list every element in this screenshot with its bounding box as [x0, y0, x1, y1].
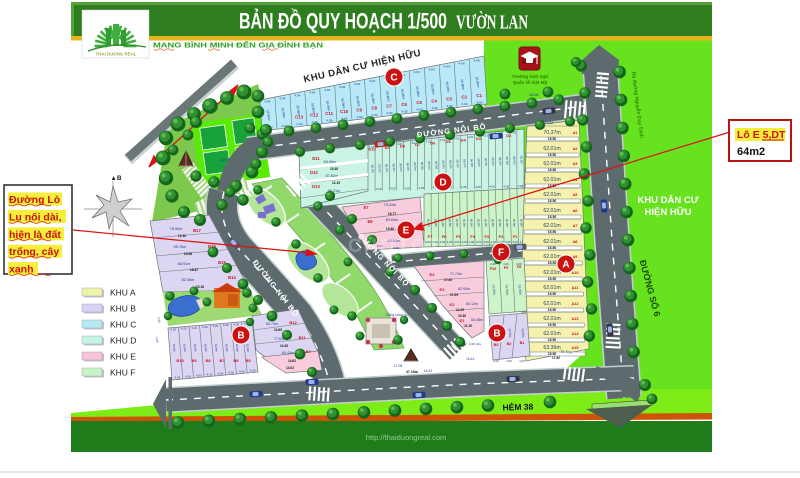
svg-text:4.20: 4.20: [223, 323, 229, 327]
svg-text:A10: A10: [572, 271, 579, 275]
svg-text:63.36m: 63.36m: [543, 345, 560, 351]
svg-text:56.9m: 56.9m: [399, 163, 404, 172]
svg-text:62.01m: 62.01m: [543, 270, 560, 276]
svg-text:11.10: 11.10: [464, 324, 472, 328]
svg-text:4.20: 4.20: [181, 327, 187, 331]
svg-text:A3: A3: [573, 162, 578, 166]
svg-text:Trường Anh ngữ: Trường Anh ngữ: [512, 74, 549, 79]
svg-text:A11: A11: [572, 286, 579, 290]
svg-text:47.15m: 47.15m: [406, 370, 418, 374]
svg-text:E1: E1: [460, 318, 466, 323]
svg-text:63.8m: 63.8m: [521, 328, 526, 338]
svg-text:▲B: ▲B: [110, 175, 121, 182]
svg-text:D12: D12: [310, 170, 318, 175]
svg-text:B7: B7: [219, 358, 225, 363]
svg-text:4.00: 4.00: [506, 359, 512, 363]
svg-text:18.87: 18.87: [190, 268, 198, 272]
svg-text:D13: D13: [312, 184, 320, 189]
svg-text:62.01m: 62.01m: [543, 161, 560, 167]
svg-text:56.9m: 56.9m: [477, 158, 482, 167]
svg-text:Quốc tế Việt Mỹ: Quốc tế Việt Mỹ: [513, 79, 548, 85]
svg-text:4.00: 4.00: [185, 375, 191, 379]
svg-text:4.00 nhà: 4.00 nhà: [469, 342, 481, 346]
svg-text:13.53: 13.53: [545, 121, 553, 125]
svg-text:B10: B10: [176, 358, 184, 363]
svg-text:64m2: 64m2: [737, 146, 765, 158]
svg-text:56.9m: 56.9m: [384, 164, 389, 173]
svg-text:4.00: 4.00: [493, 359, 499, 363]
svg-text:55.8m: 55.8m: [490, 219, 495, 228]
svg-text:F5: F5: [456, 234, 461, 239]
svg-text:62.93m: 62.93m: [458, 287, 470, 291]
svg-text:63.6m: 63.6m: [235, 344, 240, 353]
svg-text:15.50: 15.50: [548, 230, 557, 234]
svg-text:4.05: 4.05: [489, 185, 495, 189]
svg-text:62.01m: 62.01m: [543, 192, 560, 198]
svg-text:4.00: 4.00: [431, 106, 437, 110]
svg-text:4.04: 4.04: [354, 82, 360, 86]
svg-text:4.00: 4.00: [476, 240, 482, 244]
svg-text:C11: C11: [325, 111, 333, 116]
svg-text:15.58: 15.58: [184, 252, 192, 256]
svg-text:HIỆN HỮU: HIỆN HỮU: [645, 206, 692, 218]
svg-text:15.38: 15.38: [330, 167, 338, 171]
svg-text:4.00: 4.00: [371, 113, 377, 117]
svg-text:4.00: 4.00: [250, 369, 256, 373]
svg-text:D6: D6: [430, 141, 436, 146]
svg-text:13.60: 13.60: [386, 227, 394, 231]
svg-text:C3: C3: [446, 97, 452, 102]
svg-text:B3: B3: [494, 343, 499, 347]
svg-text:10.95: 10.95: [274, 328, 282, 332]
svg-text:15.50: 15.50: [548, 338, 557, 342]
svg-text:56.9m: 56.9m: [370, 165, 375, 174]
svg-text:62.01m: 62.01m: [543, 285, 560, 291]
svg-text:12.15: 12.15: [332, 181, 340, 185]
svg-text:4.00: 4.00: [476, 100, 482, 104]
svg-text:14.62: 14.62: [288, 359, 296, 363]
svg-text:KHU A: KHU A: [110, 288, 136, 298]
svg-text:17.50: 17.50: [552, 356, 560, 360]
svg-text:4.00: 4.00: [175, 376, 181, 380]
svg-text:B11: B11: [298, 335, 306, 340]
svg-text:4.00: 4.00: [386, 111, 392, 115]
svg-text:4.00: 4.00: [239, 370, 245, 374]
svg-text:56.9m: 56.9m: [434, 161, 439, 170]
svg-text:62.01m: 62.01m: [543, 208, 560, 214]
svg-text:56.9m: 56.9m: [427, 161, 432, 170]
svg-text:A5: A5: [573, 193, 578, 197]
svg-text:D4: D4: [461, 137, 467, 142]
svg-text:62.01m: 62.01m: [543, 223, 560, 229]
svg-text:E3: E3: [440, 287, 446, 292]
svg-text:4.00: 4.00: [326, 118, 332, 122]
svg-text:71.74m: 71.74m: [450, 272, 462, 276]
svg-text:68.91m: 68.91m: [178, 262, 191, 266]
svg-text:4.05: 4.05: [404, 186, 410, 190]
svg-text:MANG BÌNH MINH ĐẾN GIA ĐÌNH BẠ: MANG BÌNH MINH ĐẾN GIA ĐÌNH BẠN: [153, 40, 323, 50]
svg-text:C5: C5: [416, 100, 422, 105]
svg-text:4.05: 4.05: [503, 184, 509, 188]
svg-text:4.01: 4.01: [425, 139, 431, 143]
svg-text:4.00: 4.00: [519, 359, 525, 363]
svg-text:55.8m: 55.8m: [433, 219, 438, 228]
svg-text:15.50: 15.50: [548, 323, 557, 327]
svg-text:A12: A12: [572, 302, 579, 306]
svg-text:B5: B5: [245, 358, 251, 363]
svg-text:KHU B: KHU B: [110, 304, 136, 314]
svg-text:17.05: 17.05: [394, 364, 403, 368]
svg-text:15.50: 15.50: [548, 277, 557, 281]
svg-text:15.50: 15.50: [548, 137, 557, 141]
svg-text:56.9m: 56.9m: [505, 156, 510, 165]
svg-text:4.00: 4.00: [461, 102, 467, 106]
svg-text:55.8m: 55.8m: [512, 219, 517, 228]
svg-text:16.77: 16.77: [388, 212, 396, 216]
svg-text:D: D: [439, 178, 446, 189]
svg-text:17.29: 17.29: [450, 293, 458, 297]
svg-text:4.01: 4.01: [468, 135, 474, 139]
svg-text:4.05: 4.05: [390, 187, 396, 191]
svg-text:F4: F4: [470, 234, 475, 239]
svg-text:63.6m: 63.6m: [245, 344, 250, 353]
svg-text:BẢN ĐỒ QUY HOẠCH 1/500: BẢN ĐỒ QUY HOẠCH 1/500: [239, 9, 447, 34]
svg-text:C10: C10: [340, 109, 349, 114]
svg-text:63.6m: 63.6m: [224, 344, 229, 353]
svg-text:A2: A2: [573, 147, 578, 151]
svg-text:4.00: 4.00: [196, 374, 202, 378]
svg-text:63.6m: 63.6m: [193, 344, 198, 353]
svg-text:4.04: 4.04: [339, 85, 345, 89]
svg-text:15.50: 15.50: [548, 261, 557, 265]
svg-text:D3: D3: [476, 136, 482, 141]
svg-text:4.04: 4.04: [279, 97, 285, 101]
svg-text:15.50: 15.50: [548, 246, 557, 250]
svg-text:15.50: 15.50: [548, 308, 557, 312]
svg-text:A13: A13: [572, 317, 579, 321]
svg-text:4.00: 4.00: [461, 240, 467, 244]
svg-text:15.50: 15.50: [548, 215, 557, 219]
svg-text:F10: F10: [490, 267, 497, 271]
svg-text:15.50: 15.50: [548, 168, 557, 172]
svg-text:CHỢTỐT: CHỢTỐT: [348, 235, 442, 257]
svg-text:E: E: [403, 226, 410, 237]
svg-text:C1: C1: [476, 93, 482, 98]
svg-text:E4: E4: [430, 272, 436, 277]
svg-text:55.76m: 55.76m: [174, 245, 187, 249]
svg-text:KHU DÂN CƯ: KHU DÂN CƯ: [637, 194, 698, 206]
svg-text:A6: A6: [573, 209, 578, 213]
svg-text:4.04: 4.04: [474, 58, 480, 62]
svg-text:A7: A7: [573, 224, 578, 228]
svg-text:15.50: 15.50: [548, 292, 557, 296]
svg-text:64.65: 64.65: [530, 93, 539, 97]
svg-text:B8: B8: [205, 358, 211, 363]
svg-text:4.05: 4.05: [376, 187, 382, 191]
svg-text:KHU F: KHU F: [110, 368, 136, 378]
svg-text:4.00: 4.00: [401, 109, 407, 113]
svg-text:56.9m: 56.9m: [391, 163, 396, 172]
svg-text:55.8m: 55.8m: [462, 219, 467, 228]
svg-text:4.20: 4.20: [212, 324, 218, 328]
svg-text:73.20m: 73.20m: [384, 203, 397, 207]
svg-text:VƯỜN LAN: VƯỜN LAN: [456, 10, 528, 34]
svg-text:4.00: 4.00: [454, 240, 460, 244]
svg-text:63.8m: 63.8m: [508, 328, 513, 338]
svg-text:B: B: [237, 331, 244, 342]
svg-text:F: F: [498, 248, 504, 259]
svg-text:4.04: 4.04: [264, 100, 270, 104]
svg-text:55.8m: 55.8m: [483, 219, 488, 228]
svg-text:60.12m: 60.12m: [466, 302, 478, 306]
svg-text:56.9m: 56.9m: [448, 160, 453, 169]
svg-text:D11: D11: [312, 156, 320, 161]
svg-text:4.00: 4.00: [490, 240, 496, 244]
svg-text:14.19: 14.19: [456, 308, 464, 312]
svg-text:B12: B12: [289, 320, 297, 325]
svg-text:56.9m: 56.9m: [441, 160, 446, 169]
svg-text:55.8m: 55.8m: [498, 219, 503, 228]
svg-text:4.04: 4.04: [324, 88, 330, 92]
svg-text:4.01: 4.01: [440, 138, 446, 142]
svg-text:15.50: 15.50: [548, 199, 557, 203]
svg-text:A14: A14: [572, 332, 580, 336]
svg-text:56.9m: 56.9m: [406, 162, 411, 171]
svg-text:56.9m: 56.9m: [413, 162, 418, 171]
svg-text:56.9m: 56.9m: [484, 158, 489, 167]
svg-text:4.00: 4.00: [516, 262, 522, 266]
svg-text:4.04: 4.04: [294, 94, 300, 98]
svg-text:15.50: 15.50: [548, 153, 557, 157]
svg-text:4.04: 4.04: [429, 67, 435, 71]
svg-text:4.04: 4.04: [369, 79, 375, 83]
svg-text:E2: E2: [450, 302, 456, 307]
svg-text:63.6m: 63.6m: [182, 344, 187, 353]
svg-text:THAI DUONG REAL: THAI DUONG REAL: [96, 52, 137, 57]
svg-text:55.8m: 55.8m: [469, 219, 474, 228]
svg-text:12.30: 12.30: [178, 234, 186, 238]
svg-text:4.01: 4.01: [397, 142, 403, 146]
svg-text:17.40: 17.40: [444, 278, 452, 282]
svg-text:F9: F9: [504, 266, 508, 270]
svg-text:A: A: [562, 260, 569, 271]
svg-text:14.02: 14.02: [286, 366, 294, 370]
svg-text:4.01: 4.01: [454, 136, 460, 140]
svg-text:15.44: 15.44: [466, 357, 474, 361]
svg-text:B9: B9: [191, 358, 197, 363]
svg-text:62.01m: 62.01m: [543, 239, 560, 245]
svg-text:4.04: 4.04: [459, 61, 465, 65]
svg-text:B: B: [493, 329, 500, 340]
svg-text:A1: A1: [573, 131, 578, 135]
svg-text:C2: C2: [461, 95, 467, 100]
svg-text:56.9m: 56.9m: [491, 157, 496, 166]
svg-text:55.8m: 55.8m: [448, 219, 453, 228]
svg-text:F3: F3: [484, 234, 489, 239]
svg-text:63.6m: 63.6m: [203, 344, 208, 353]
svg-text:B17: B17: [193, 228, 201, 233]
svg-text:4.00: 4.00: [447, 240, 453, 244]
svg-text:56.9m: 56.9m: [420, 162, 425, 171]
svg-text:4.05: 4.05: [461, 185, 467, 189]
svg-text:4.20: 4.20: [202, 325, 208, 329]
svg-text:56.9m: 56.9m: [519, 156, 524, 165]
svg-text:14.38: 14.38: [280, 344, 288, 348]
svg-text:A8: A8: [573, 240, 578, 244]
svg-text:56.9m: 56.9m: [498, 157, 503, 166]
svg-text:C8: C8: [371, 106, 377, 111]
svg-text:4.20: 4.20: [191, 326, 197, 330]
svg-text:KHU C: KHU C: [110, 320, 136, 330]
svg-text:A15: A15: [572, 346, 579, 350]
svg-text:62.01m: 62.01m: [543, 316, 560, 322]
svg-text:4.20: 4.20: [170, 328, 176, 332]
svg-text:F2: F2: [499, 234, 504, 239]
svg-text:B2: B2: [507, 342, 512, 346]
svg-text:B4: B4: [305, 349, 311, 354]
svg-text:53.48m: 53.48m: [471, 318, 483, 322]
svg-text:C4: C4: [431, 98, 437, 103]
svg-text:E6: E6: [367, 219, 373, 224]
svg-text:B14: B14: [228, 275, 236, 280]
svg-text:55.8m: 55.8m: [505, 219, 510, 228]
svg-text:4.05: 4.05: [518, 184, 524, 188]
svg-text:B6: B6: [233, 358, 239, 363]
svg-text:62.01m: 62.01m: [543, 177, 560, 183]
svg-text:4.00: 4.00: [512, 240, 518, 244]
svg-text:56.9m: 56.9m: [462, 159, 467, 168]
svg-text:16.42: 16.42: [424, 369, 433, 373]
svg-text:4.00: 4.00: [296, 122, 302, 126]
svg-text:4.00: 4.00: [207, 373, 213, 377]
svg-text:4.00: 4.00: [503, 262, 509, 266]
svg-text:4.00: 4.00: [483, 240, 489, 244]
svg-text:62.01m: 62.01m: [543, 146, 560, 152]
svg-text:70.37m: 70.37m: [543, 130, 560, 136]
svg-text:82.06m: 82.06m: [182, 278, 195, 282]
svg-text:62.01m: 62.01m: [543, 331, 560, 337]
svg-text:4.00: 4.00: [505, 240, 511, 244]
svg-text:55.74m: 55.74m: [266, 322, 278, 326]
svg-text:63.6m: 63.6m: [214, 344, 219, 353]
svg-text:56.9m: 56.9m: [512, 156, 517, 165]
svg-text:55.8m: 55.8m: [455, 219, 460, 228]
svg-text:4.00: 4.00: [469, 240, 475, 244]
svg-text:KHU E: KHU E: [110, 352, 136, 362]
svg-text:C7: C7: [386, 104, 392, 109]
svg-text:63.6m: 63.6m: [172, 344, 177, 353]
svg-text:http://thaiduongreal.com: http://thaiduongreal.com: [366, 433, 446, 442]
svg-text:4.01: 4.01: [369, 145, 375, 149]
svg-text:55.8m: 55.8m: [476, 219, 481, 228]
svg-text:E7: E7: [363, 205, 369, 210]
svg-text:4.05: 4.05: [418, 186, 424, 190]
svg-text:4.04: 4.04: [444, 64, 450, 68]
svg-text:4.00: 4.00: [356, 115, 362, 119]
svg-text:4.04: 4.04: [309, 91, 315, 95]
svg-text:60.64m: 60.64m: [386, 218, 399, 222]
svg-text:B1: B1: [520, 341, 525, 345]
svg-text:F1: F1: [513, 234, 518, 239]
svg-text:62.01m: 62.01m: [543, 301, 560, 307]
svg-text:HẺM 38: HẺM 38: [502, 400, 533, 412]
svg-text:56.9m: 56.9m: [377, 164, 382, 173]
svg-text:Lô E 5,DT: Lô E 5,DT: [737, 129, 786, 141]
svg-text:4.00: 4.00: [218, 372, 224, 376]
svg-text:56.9m: 56.9m: [469, 159, 474, 168]
svg-text:C9: C9: [356, 107, 362, 112]
svg-text:KHU D: KHU D: [110, 336, 136, 346]
svg-text:C: C: [390, 73, 397, 84]
svg-text:4.20: 4.20: [233, 322, 239, 326]
svg-text:56.9m: 56.9m: [455, 159, 460, 168]
svg-text:C6: C6: [401, 102, 407, 107]
svg-text:4.04: 4.04: [414, 70, 420, 74]
svg-text:4.05: 4.05: [475, 185, 481, 189]
svg-text:80.43m: 80.43m: [282, 351, 294, 355]
svg-text:78.90m: 78.90m: [170, 227, 183, 231]
svg-text:4.00: 4.00: [228, 371, 234, 375]
svg-text:F6: F6: [442, 234, 447, 239]
